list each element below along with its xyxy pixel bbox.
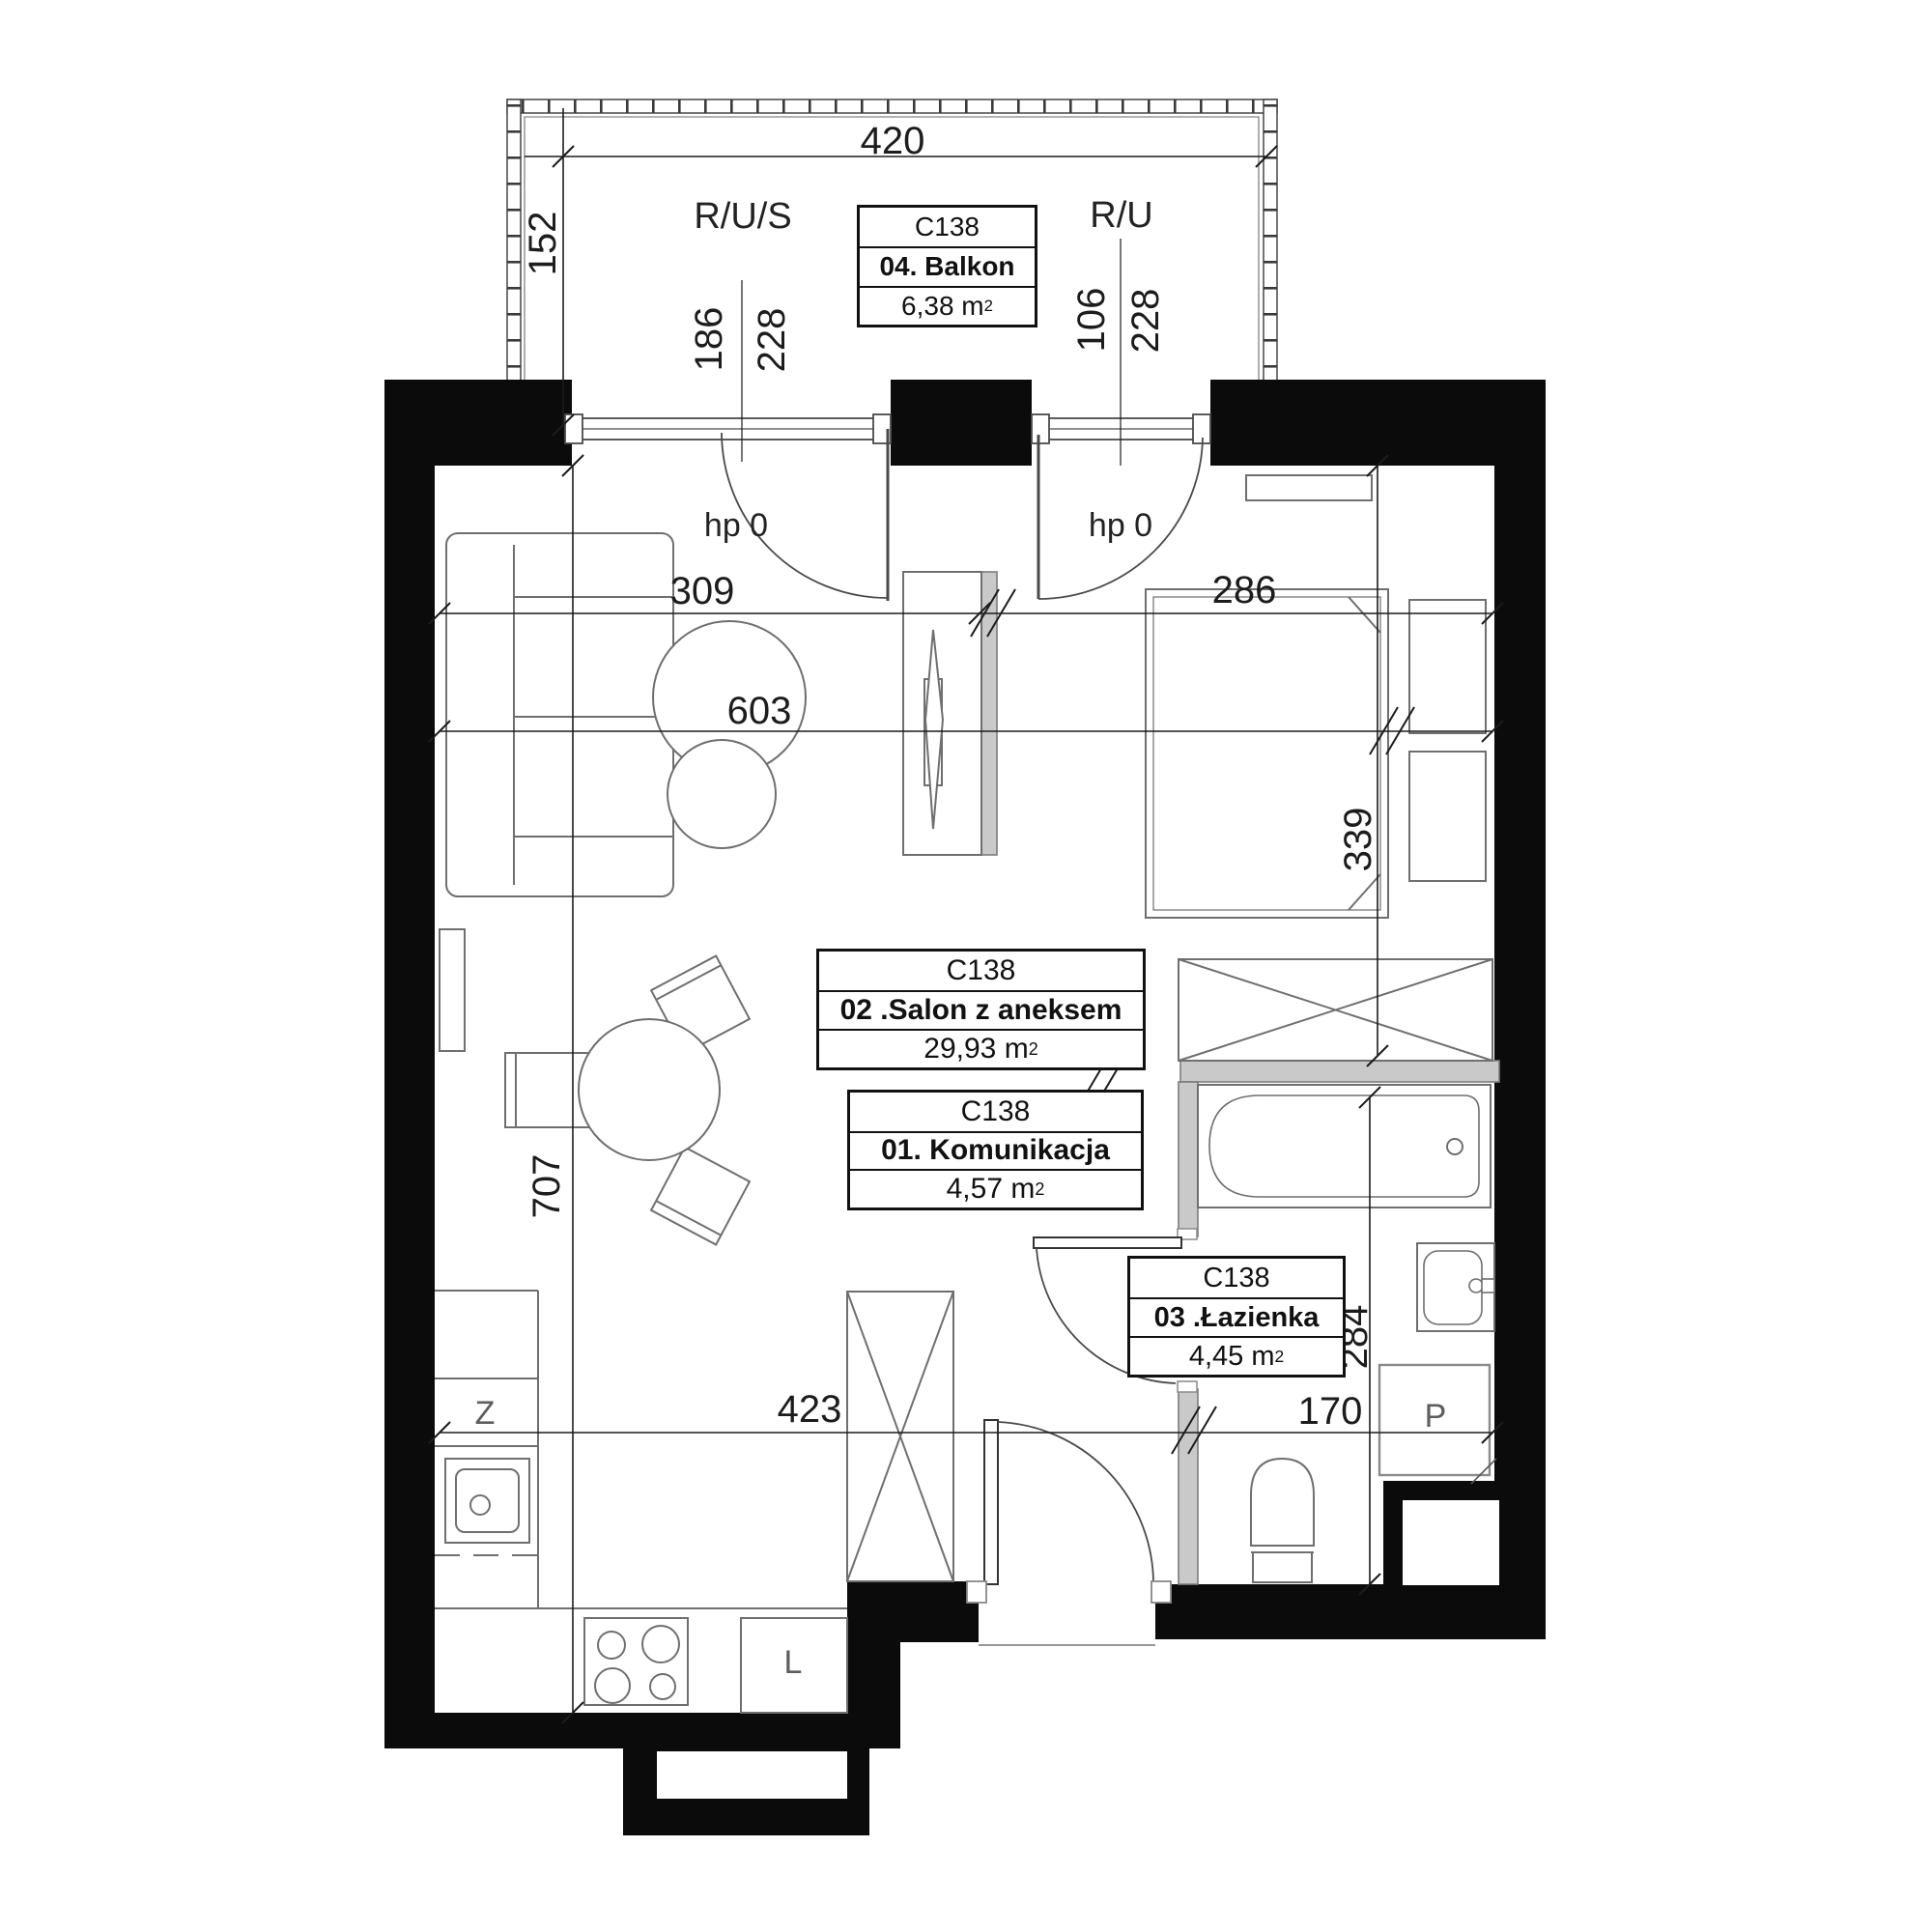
nightstands	[1409, 600, 1486, 881]
dim-balcony-left-a: 186	[688, 262, 730, 416]
room-name: 03 .Łazienka	[1130, 1297, 1343, 1336]
shaft-niche	[1403, 1500, 1499, 1585]
floor-plan: 420 152 186 228 106 228 309 286 603 339 …	[0, 0, 1932, 1932]
washbasin	[1417, 1243, 1494, 1331]
riser-label-right: R/U	[1044, 194, 1199, 237]
room-label-komunikacja: C138 01. Komunikacja 4,57 m2	[847, 1090, 1144, 1210]
room-area: 4,57 m2	[850, 1169, 1141, 1207]
closet-bathroom	[1179, 959, 1492, 1061]
riser-label-left: R/U/S	[666, 195, 820, 238]
dim-living-width: 309	[625, 570, 780, 612]
toilet	[1251, 1459, 1314, 1582]
room-area: 4,45 m2	[1130, 1336, 1343, 1375]
washer-label: P	[1358, 1395, 1513, 1437]
room-label-salon: C138 02 .Salon z aneksem 29,93 m2	[816, 949, 1146, 1070]
door-height-label-left: hp 0	[659, 504, 813, 547]
room-label-balkon: C138 04. Balkon 6,38 m2	[857, 205, 1037, 327]
room-name: 02 .Salon z aneksem	[819, 990, 1143, 1029]
room-code: C138	[1130, 1259, 1343, 1297]
wardrobe-hall	[847, 1292, 953, 1581]
room-code: C138	[860, 208, 1035, 246]
dim-living-depth: 707	[526, 1109, 568, 1264]
door-height-label-right: hp 0	[1043, 504, 1198, 547]
dim-bedroom-width: 286	[1167, 569, 1321, 611]
dim-kitchen-width: 423	[732, 1388, 887, 1431]
fridge-label: L	[716, 1641, 870, 1684]
tv-cabinet	[903, 572, 981, 855]
room-area: 29,93 m2	[819, 1029, 1143, 1067]
room-label-lazienka: C138 03 .Łazienka 4,45 m2	[1127, 1256, 1346, 1378]
dim-balcony-left-b: 228	[751, 263, 793, 417]
exterior-recess	[657, 1751, 847, 1799]
room-area: 6,38 m2	[860, 286, 1035, 325]
room-code: C138	[819, 952, 1143, 990]
room-name: 04. Balkon	[860, 246, 1035, 285]
dim-balcony-right-a: 106	[1070, 242, 1113, 397]
window-band-living	[565, 414, 891, 443]
radiator-living	[440, 929, 465, 1051]
dim-bed-zone-depth: 339	[1337, 762, 1379, 917]
dim-balcony-depth: 152	[522, 166, 564, 321]
sink-label: Z	[408, 1392, 562, 1435]
shelf-bedroom	[1246, 475, 1372, 500]
dim-total-width: 603	[682, 690, 837, 732]
chair	[651, 1147, 750, 1244]
dim-balcony-right-b: 228	[1124, 243, 1167, 398]
room-name: 01. Komunikacja	[850, 1131, 1141, 1170]
coffee-tables	[653, 621, 806, 848]
dining-table	[579, 1019, 720, 1160]
dim-balcony-width: 420	[815, 120, 970, 162]
bathtub	[1198, 1085, 1491, 1207]
room-code: C138	[850, 1093, 1141, 1131]
